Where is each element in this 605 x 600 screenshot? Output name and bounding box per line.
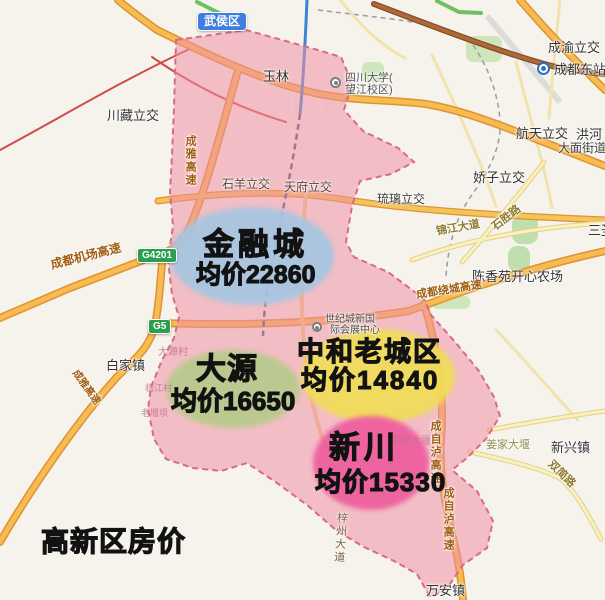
- page-title: 高新区房价: [41, 520, 186, 560]
- map-label-chengdu-east-station: 成都东站: [554, 63, 605, 77]
- map-label-damian-subdistrict: 大面街道: [558, 142, 605, 155]
- map-label-chenxiangyuan-farm: 陈香苑开心农场: [472, 270, 563, 284]
- map-label-tianfu-interchange: 天府立交: [284, 181, 332, 194]
- map-label-scu-line2: 望江校区): [345, 84, 393, 96]
- zone-price-xinchuan: 均价15330: [315, 462, 446, 499]
- zone-price-zhonghe: 均价14840: [301, 360, 439, 397]
- map-label-expo-center-line1: 世纪城新国: [325, 314, 375, 325]
- map-viewport[interactable]: 武侯区 G4201 G5 玉林 四川大学( 望江校区) 成渝立交 成都东站 航天…: [0, 0, 605, 600]
- map-label-liuli-interchange: 琉璃立交: [377, 193, 425, 206]
- highway-badge-g4201: G4201: [137, 248, 177, 263]
- map-label-sansheng: 三圣: [588, 224, 605, 238]
- map-label-jiangjia-dayan: 姜家大堰: [486, 439, 530, 451]
- map-label-jiaozi-interchange: 娇子立交: [473, 171, 525, 185]
- district-badge-wuhou: 武侯区: [197, 12, 247, 31]
- map-label-wanan-town: 万安镇: [426, 584, 465, 598]
- map-label-dayuan-village: 大源村: [158, 347, 188, 358]
- map-label-chuanzang-interchange: 川藏立交: [107, 109, 159, 123]
- highway-badge-g5: G5: [148, 319, 171, 334]
- map-label-baijia-town: 白家镇: [106, 359, 145, 373]
- zone-price-jinrongcheng: 均价22860: [196, 255, 316, 291]
- map-label-chengyu-interchange: 成渝立交: [548, 41, 600, 55]
- map-label-hangtian-interchange: 航天立交: [516, 127, 568, 141]
- map-label-yulin: 玉林: [263, 70, 289, 84]
- metro-station-icon: [537, 62, 550, 75]
- map-label-xinxing-town: 新兴镇: [551, 441, 590, 455]
- map-label-laoyanba: 老堰坝: [141, 409, 168, 419]
- university-poi-icon: [330, 77, 341, 88]
- map-label-linjiang-village: 临江村: [145, 384, 172, 394]
- map-label-chengya-expressway-north: 成雅高速: [184, 135, 196, 187]
- map-canvas: [0, 0, 605, 600]
- zone-price-dayuan: 均价16650: [171, 381, 295, 418]
- map-label-shiyang-interchange: 石羊立交: [222, 178, 270, 191]
- zone-name-xinchuan: 新川: [329, 422, 399, 467]
- map-label-scu-line1: 四川大学(: [345, 72, 393, 84]
